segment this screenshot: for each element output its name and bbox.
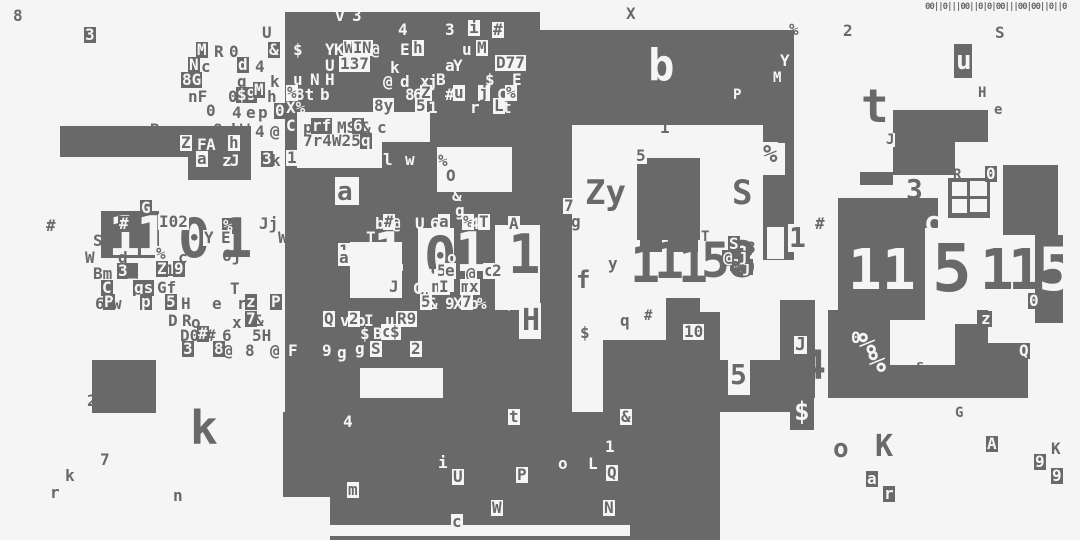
glyph: $ <box>580 325 590 341</box>
glyph: 2 <box>87 393 97 409</box>
glyph: 2 <box>491 263 503 279</box>
glyph: L <box>588 456 598 472</box>
glyph: S <box>995 25 1005 41</box>
glyph: 3 <box>182 341 194 357</box>
glyph: 0 <box>1028 293 1040 309</box>
glyph: J <box>388 279 400 295</box>
glyph: & <box>428 296 438 312</box>
glyph: % <box>477 296 487 312</box>
glyph: I <box>438 279 450 295</box>
glyph: K <box>875 432 893 462</box>
glyph: 8y <box>373 98 394 114</box>
glyph: 9 <box>1051 468 1063 484</box>
glyph: 1 <box>788 224 807 252</box>
glyph: 4 <box>802 346 826 386</box>
glyph: E <box>220 230 232 246</box>
glyph: 10 <box>683 324 704 340</box>
glyph: 5 <box>415 98 427 114</box>
glyph: y <box>608 256 618 272</box>
glyph: Zy <box>585 176 626 210</box>
glyph: R <box>214 44 224 60</box>
glyph: i <box>468 20 480 36</box>
glyph: @ <box>383 74 393 90</box>
glyph: 2 <box>843 23 853 39</box>
glyph: H <box>978 86 986 100</box>
glyph: M <box>253 82 265 98</box>
glyph: @ <box>270 124 280 140</box>
glyph: U <box>415 216 425 232</box>
glyph: 1 <box>508 228 541 282</box>
glyph: 0 <box>206 103 216 119</box>
glyph: S <box>732 176 752 210</box>
glyph: 3 <box>84 27 96 43</box>
window-icon <box>948 178 990 218</box>
glyph: 9 <box>173 261 185 277</box>
glyph: 5 <box>635 148 647 164</box>
glyph: D <box>168 313 178 329</box>
glyph: J <box>230 153 240 169</box>
block <box>92 360 156 413</box>
glyph: G <box>955 406 963 420</box>
glitch-canvas: 00||0|||00||0|0|00|||00|00||0||0 83UMR0&… <box>0 0 1080 540</box>
glyph: 0 <box>274 103 286 119</box>
glyph: & <box>620 409 632 425</box>
glyph: c <box>451 514 463 530</box>
glyph: 5 <box>730 361 747 389</box>
glyph: z <box>245 294 257 310</box>
glyph: Y <box>780 53 790 69</box>
glyph: # <box>492 22 504 38</box>
glyph: P <box>270 294 282 310</box>
glyph: S <box>93 233 103 249</box>
glyph: 1 <box>605 439 615 455</box>
glyph: v <box>335 8 345 24</box>
glyph: t <box>508 409 520 425</box>
glyph: T <box>366 230 376 246</box>
glyph: a <box>196 151 208 167</box>
block <box>893 110 988 142</box>
glyph: 0 <box>731 260 741 276</box>
glyph: E <box>400 42 410 58</box>
glyph: 5 <box>1038 240 1074 300</box>
block <box>540 125 572 412</box>
glyph: Q <box>323 311 335 327</box>
block <box>1003 165 1058 235</box>
glyph: t <box>502 100 512 116</box>
glyph: % <box>762 142 778 166</box>
glyph: @ <box>370 42 380 58</box>
glyph: k <box>271 153 281 169</box>
glyph: w <box>405 152 415 168</box>
glyph: c <box>201 59 211 75</box>
glyph: 2 <box>410 341 422 357</box>
glyph: J <box>885 133 895 147</box>
glyph: 1 <box>882 243 916 299</box>
glyph: j <box>478 85 490 101</box>
glyph: I02 <box>158 214 189 230</box>
glyph: $ <box>389 324 401 340</box>
glyph: 5H <box>252 328 271 344</box>
glyph: e <box>212 296 222 312</box>
glyph: U <box>452 469 464 485</box>
glyph: s <box>916 359 924 373</box>
glyph: 8 <box>13 8 23 24</box>
block <box>360 368 443 398</box>
glyph: b <box>648 44 675 88</box>
barcode: 00||0|||00||0|0|00|||00|00||0||0 <box>925 3 1066 12</box>
glyph: D77 <box>495 55 526 71</box>
block <box>893 142 955 175</box>
block <box>603 298 666 340</box>
glyph: F <box>288 343 298 359</box>
glyph: a <box>338 250 350 266</box>
glyph: # <box>815 216 825 232</box>
glyph: 4 <box>255 59 265 75</box>
glyph: @ <box>391 216 401 232</box>
glyph: B <box>150 122 160 138</box>
glyph: r <box>883 486 895 502</box>
glyph: f <box>542 281 552 297</box>
glyph: 6j <box>222 248 241 264</box>
glyph: p <box>258 105 268 121</box>
glyph: 5 <box>932 236 972 302</box>
glyph: 0 <box>361 152 371 168</box>
glyph: Y <box>453 58 463 74</box>
glyph: M <box>773 71 781 85</box>
glyph: 1 <box>660 120 670 136</box>
glyph: W <box>278 230 288 246</box>
glyph: C <box>286 118 296 134</box>
glyph: z <box>980 311 992 327</box>
glyph: 7 <box>100 452 110 468</box>
glyph: H <box>181 296 191 312</box>
glyph: 4 <box>343 414 353 430</box>
glyph: x <box>232 315 242 331</box>
glyph: M <box>476 40 488 56</box>
glyph: X% <box>286 100 305 116</box>
glyph: S <box>370 341 382 357</box>
glyph: q <box>620 313 630 329</box>
glyph: o <box>833 436 849 462</box>
glyph: u <box>462 42 472 58</box>
glyph: 9 <box>1034 454 1046 470</box>
glyph: h <box>412 40 424 56</box>
glyph: e <box>994 103 1002 117</box>
glyph: 8 <box>245 343 255 359</box>
glyph: 1 <box>373 226 406 280</box>
glyph: h <box>228 135 240 151</box>
glyph: O <box>446 168 456 184</box>
glyph: nF <box>188 89 207 105</box>
glyph: Q <box>606 465 618 481</box>
glyph: q <box>360 133 372 149</box>
glyph: 1 <box>286 150 298 166</box>
glyph: u <box>956 48 972 74</box>
glyph: k <box>190 405 218 451</box>
glyph: i <box>438 455 448 471</box>
glyph: u <box>453 85 465 101</box>
glyph: QO <box>502 296 521 312</box>
glyph: w <box>112 296 122 312</box>
glyph: W <box>240 122 250 138</box>
glyph: p <box>140 294 152 310</box>
glyph: & <box>268 42 280 58</box>
glyph: 4 <box>398 22 408 38</box>
glyph: H <box>522 306 540 336</box>
glyph: a <box>866 471 878 487</box>
block <box>890 365 988 398</box>
glyph: 3_ <box>117 263 138 279</box>
glyph: c <box>377 120 387 136</box>
glyph: 137 <box>339 56 370 72</box>
glyph: U <box>262 25 272 41</box>
glyph: m <box>347 482 359 498</box>
glyph: A <box>986 436 998 452</box>
glyph: f <box>576 268 590 292</box>
glyph: k <box>65 468 75 484</box>
glyph: % <box>789 22 799 38</box>
glyph: 5 <box>165 294 177 310</box>
glyph: Q <box>1018 343 1030 359</box>
glyph: u <box>1051 296 1061 312</box>
glyph: e <box>246 105 256 121</box>
block <box>603 340 720 412</box>
glyph: $ <box>794 399 810 425</box>
glyph: Z <box>180 135 192 151</box>
glyph: o <box>558 456 568 472</box>
block <box>630 525 720 540</box>
glyph: g <box>571 214 581 230</box>
glyph: 3 <box>906 176 923 204</box>
glyph: r <box>50 485 60 501</box>
glyph: b <box>320 87 330 103</box>
glyph: @ <box>270 343 280 359</box>
glyph: g <box>355 341 365 357</box>
glyph: g <box>337 345 347 361</box>
block <box>860 172 893 185</box>
glyph: Y <box>203 230 215 246</box>
glyph: N <box>603 500 615 516</box>
glyph: 4 <box>232 105 242 121</box>
block <box>330 536 630 540</box>
glyph: 1 <box>428 100 438 116</box>
glyph: 3 <box>352 8 362 24</box>
glyph: n <box>173 488 183 504</box>
glyph: d <box>237 57 249 73</box>
glyph: 7r4W25 <box>303 133 361 149</box>
block <box>637 158 700 240</box>
glyph: r <box>470 100 480 116</box>
glyph: # <box>644 309 652 323</box>
glyph: L <box>360 268 370 284</box>
glyph: % <box>868 348 886 378</box>
glyph: X <box>626 6 636 22</box>
glyph: l <box>383 152 393 168</box>
block <box>767 227 784 259</box>
glyph: 1 <box>848 243 882 299</box>
glyph: t <box>861 83 889 129</box>
glyph: P <box>733 88 741 102</box>
glyph: K <box>1051 441 1061 457</box>
glyph: 8G <box>181 72 202 88</box>
glyph: $ <box>293 42 303 58</box>
glyph: T <box>478 214 490 230</box>
glyph: # <box>46 218 56 234</box>
glyph: # <box>118 216 130 232</box>
glyph: a <box>337 179 353 205</box>
glyph: A <box>508 216 520 232</box>
glyph: @ <box>223 343 233 359</box>
glyph: 3 <box>445 22 455 38</box>
glyph: 9 <box>322 343 332 359</box>
glyph: Jj <box>258 216 279 232</box>
glyph: a <box>438 214 450 230</box>
glyph: W <box>491 500 503 516</box>
glyph: P <box>516 467 528 483</box>
